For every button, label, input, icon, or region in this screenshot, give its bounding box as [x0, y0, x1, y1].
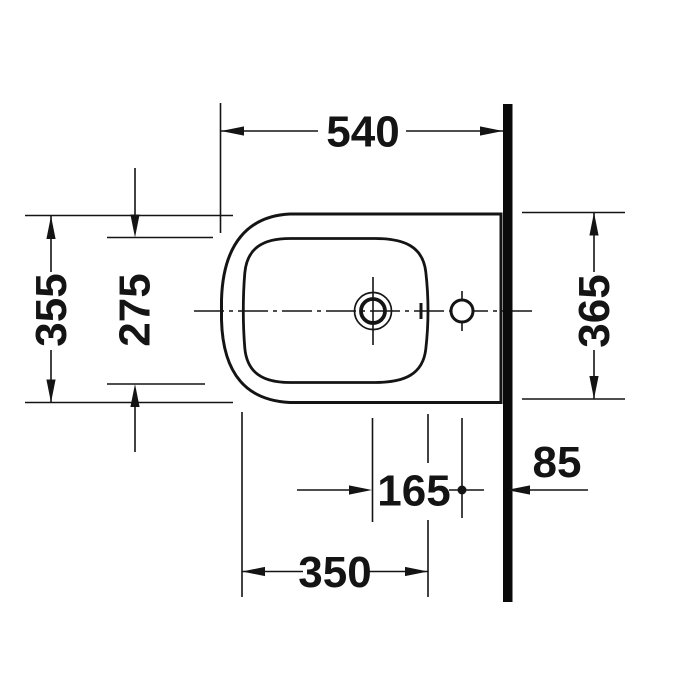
dimension-85: 85: [507, 438, 588, 495]
rear-hole-circle: [451, 300, 473, 322]
dimension-label-165: 165: [377, 467, 450, 516]
wall-line: [503, 104, 513, 602]
dimension-365: 365: [522, 213, 625, 400]
dimension-arrow-up: [130, 384, 139, 407]
dimension-arrow-left: [242, 567, 265, 576]
drawing-page: 540 355 275 365: [0, 0, 700, 700]
dimension-arrow-down: [589, 376, 598, 399]
dimension-label-540: 540: [326, 108, 399, 157]
dimension-275: 275: [107, 168, 213, 452]
technical-drawing-canvas: 540 355 275 365: [0, 0, 700, 700]
dimension-arrow-right: [480, 126, 503, 135]
dimension-arrow-up: [46, 216, 55, 239]
dimension-label-85: 85: [533, 438, 582, 487]
dimension-label-365: 365: [570, 274, 619, 347]
dimension-label-350: 350: [298, 548, 371, 597]
dimension-arrow-left: [221, 126, 244, 135]
dimension-arrow-right: [349, 485, 372, 494]
dimension-arrow-up: [589, 213, 598, 236]
dimension-arrow-down: [130, 215, 139, 238]
dimension-label-275: 275: [111, 273, 160, 346]
dimension-label-355: 355: [27, 273, 76, 346]
dimension-arrow-right: [405, 567, 428, 576]
dimension-dot: [458, 486, 467, 495]
dimension-arrow-down: [46, 380, 55, 403]
